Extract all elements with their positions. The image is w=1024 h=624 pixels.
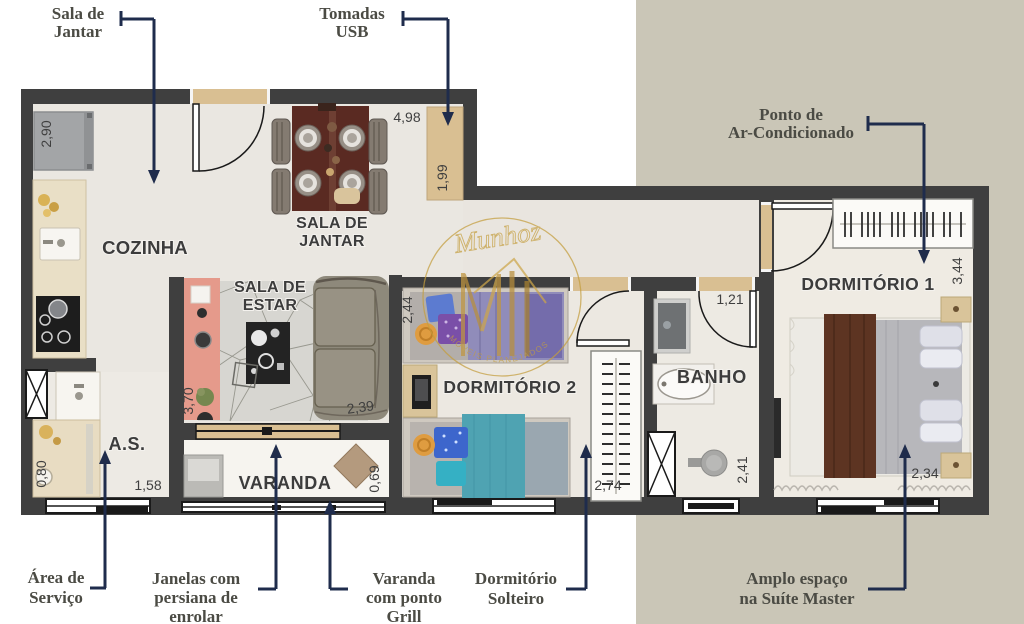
svg-text:Janelas com: Janelas com (152, 569, 240, 588)
svg-text:na Suíte Master: na Suíte Master (739, 589, 855, 608)
svg-text:SALA DE: SALA DE (296, 215, 368, 232)
svg-text:0,80: 0,80 (33, 460, 49, 487)
svg-text:Tomadas: Tomadas (319, 4, 385, 23)
svg-text:ESTAR: ESTAR (243, 297, 298, 314)
svg-text:USB: USB (335, 22, 368, 41)
svg-text:2,34: 2,34 (911, 465, 938, 481)
svg-text:COZINHA: COZINHA (102, 237, 188, 258)
svg-text:Sala de: Sala de (52, 4, 105, 23)
svg-text:3,70: 3,70 (180, 387, 196, 414)
svg-text:Área de: Área de (28, 568, 85, 587)
svg-text:3,44: 3,44 (949, 257, 965, 284)
svg-text:Solteiro: Solteiro (488, 589, 544, 608)
svg-text:DORMITÓRIO 1: DORMITÓRIO 1 (801, 273, 934, 294)
svg-text:1,58: 1,58 (134, 477, 161, 493)
svg-text:enrolar: enrolar (169, 607, 223, 624)
svg-text:Varanda: Varanda (373, 569, 436, 588)
svg-text:Ponto de: Ponto de (759, 105, 823, 124)
svg-text:Grill: Grill (387, 607, 422, 624)
svg-text:Amplo espaço: Amplo espaço (746, 569, 848, 588)
svg-text:SALA DE: SALA DE (234, 279, 306, 296)
svg-text:2,74: 2,74 (594, 477, 621, 493)
svg-text:2,41: 2,41 (734, 456, 750, 483)
svg-text:4,98: 4,98 (393, 109, 420, 125)
svg-text:BANHO: BANHO (677, 367, 747, 387)
svg-text:Serviço: Serviço (29, 588, 83, 607)
svg-text:Ar-Condicionado: Ar-Condicionado (728, 123, 854, 142)
svg-text:A.S.: A.S. (108, 434, 145, 454)
svg-text:com ponto: com ponto (366, 588, 442, 607)
svg-text:2,44: 2,44 (399, 296, 415, 323)
svg-text:1,21: 1,21 (716, 291, 743, 307)
svg-text:JANTAR: JANTAR (299, 233, 365, 250)
svg-text:persiana de: persiana de (154, 588, 238, 607)
svg-text:0,69: 0,69 (366, 465, 382, 492)
svg-text:DORMITÓRIO 2: DORMITÓRIO 2 (443, 376, 576, 397)
svg-text:Jantar: Jantar (54, 22, 103, 41)
svg-text:2,90: 2,90 (38, 120, 54, 147)
svg-text:Dormitório: Dormitório (475, 569, 557, 588)
svg-text:VARANDA: VARANDA (239, 473, 332, 493)
svg-text:1,99: 1,99 (434, 164, 450, 191)
